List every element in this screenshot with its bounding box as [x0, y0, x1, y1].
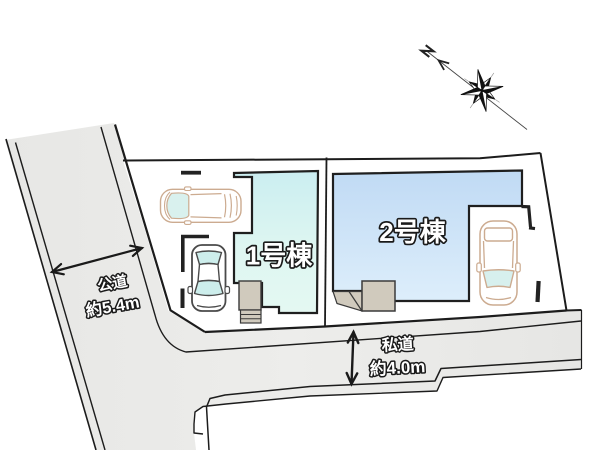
svg-text:約4.0m: 約4.0m [369, 356, 426, 379]
svg-text:1号棟: 1号棟 [246, 241, 313, 271]
svg-text:2号棟: 2号棟 [379, 217, 446, 247]
svg-text:私道: 私道 [381, 334, 414, 355]
